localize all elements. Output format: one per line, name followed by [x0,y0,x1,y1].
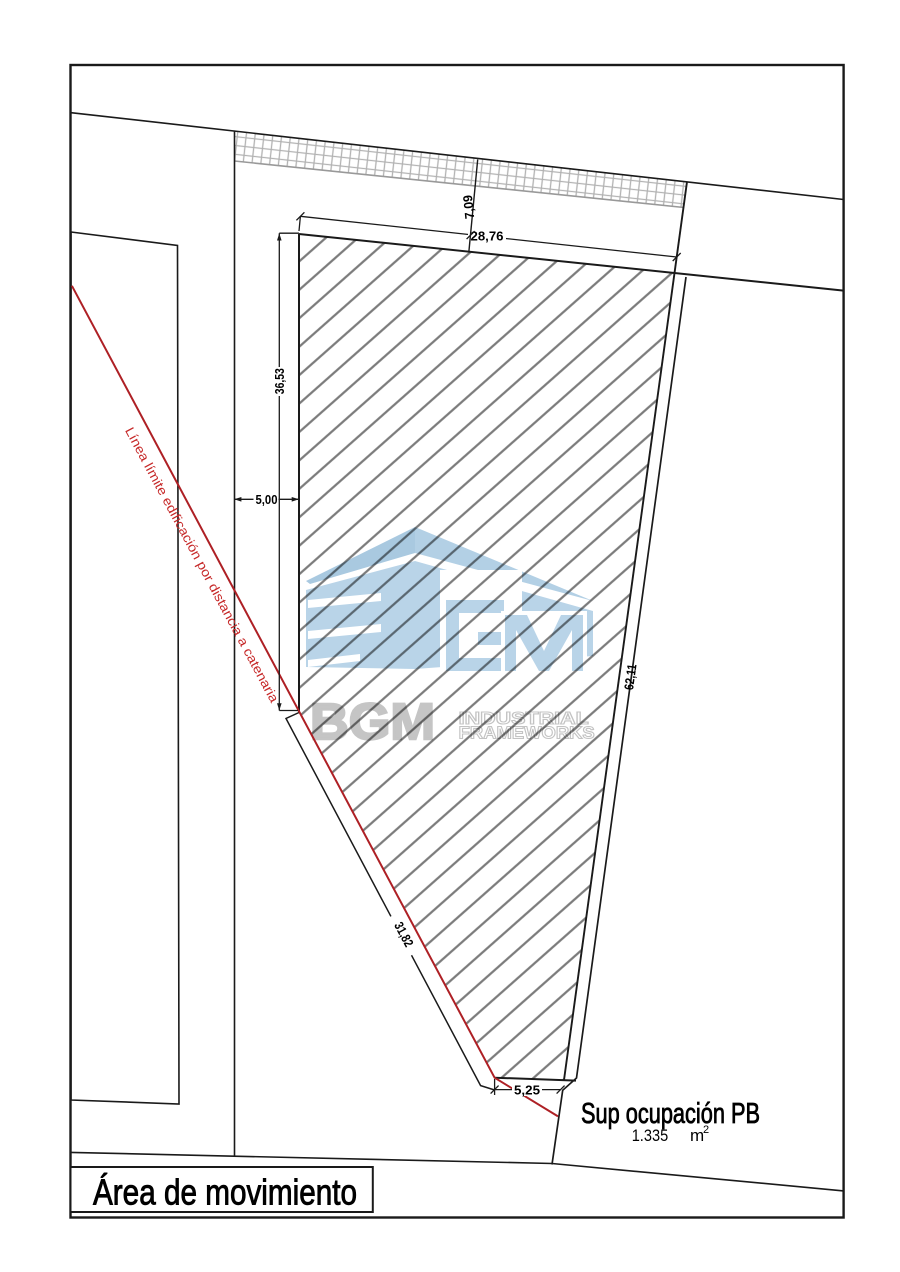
svg-text:5,00: 5,00 [256,492,278,507]
svg-text:Sup ocupación PB: Sup ocupación PB [581,1098,760,1130]
svg-text:36,53: 36,53 [272,368,287,394]
svg-text:7,09: 7,09 [460,194,477,219]
svg-text:28,76: 28,76 [471,228,504,243]
svg-text:2: 2 [703,1124,709,1136]
svg-text:5,25: 5,25 [514,1082,540,1097]
svg-text:Área de movimiento: Área de movimiento [93,1172,357,1213]
svg-text:1.335: 1.335 [632,1126,669,1145]
